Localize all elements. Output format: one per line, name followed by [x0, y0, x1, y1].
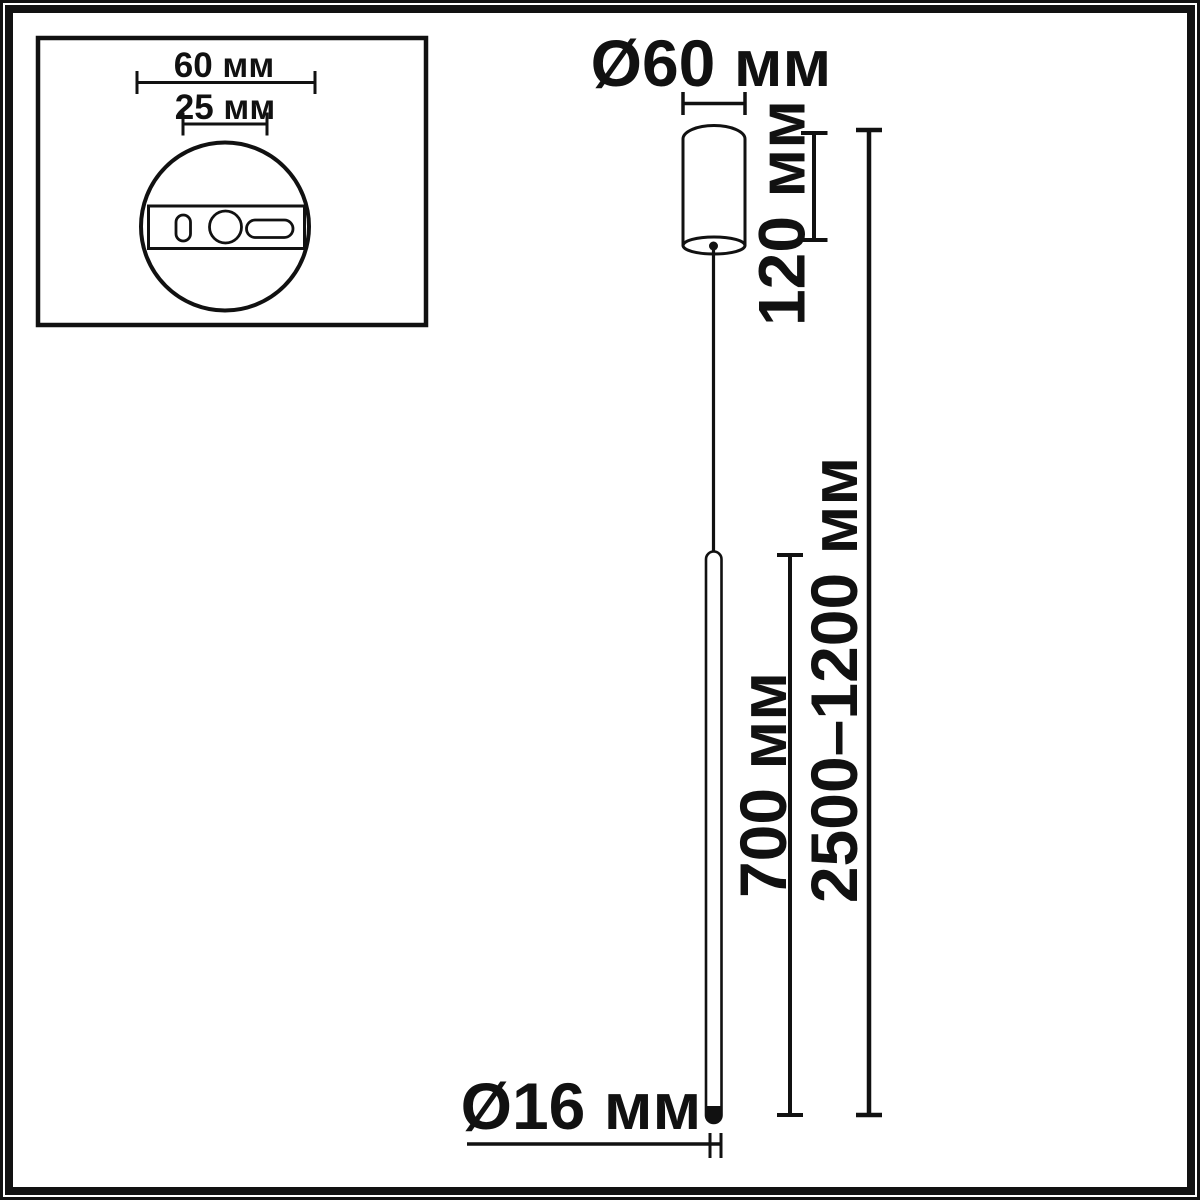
- hole-spacing-label: 25 мм: [175, 88, 275, 127]
- bracket-center-hole: [210, 211, 242, 243]
- ceiling-plate-inset: 60 мм 25 мм: [38, 38, 426, 325]
- rod-diameter-label: Ø16 мм: [461, 1069, 702, 1143]
- pendant-lamp-dimension-diagram: 60 мм 25 мм Ø60 мм: [0, 0, 1200, 1200]
- rod-length-label: 700 мм: [726, 672, 800, 898]
- rod-lamp-tip: [706, 1106, 722, 1123]
- canopy-height-label: 120 мм: [745, 100, 819, 326]
- cable-gland-dot: [709, 242, 718, 251]
- canopy-body: [683, 126, 745, 247]
- suspension-height-label: 2500–1200 мм: [797, 457, 871, 903]
- bracket-slot-vertical: [176, 215, 191, 241]
- canopy-diameter-label: Ø60 мм: [591, 26, 832, 100]
- plate-width-label: 60 мм: [174, 46, 274, 85]
- diagram-canvas: 60 мм 25 мм Ø60 мм: [0, 0, 1200, 1200]
- rod-lamp-body: [706, 552, 722, 1124]
- bracket-slot-horizontal: [247, 220, 294, 238]
